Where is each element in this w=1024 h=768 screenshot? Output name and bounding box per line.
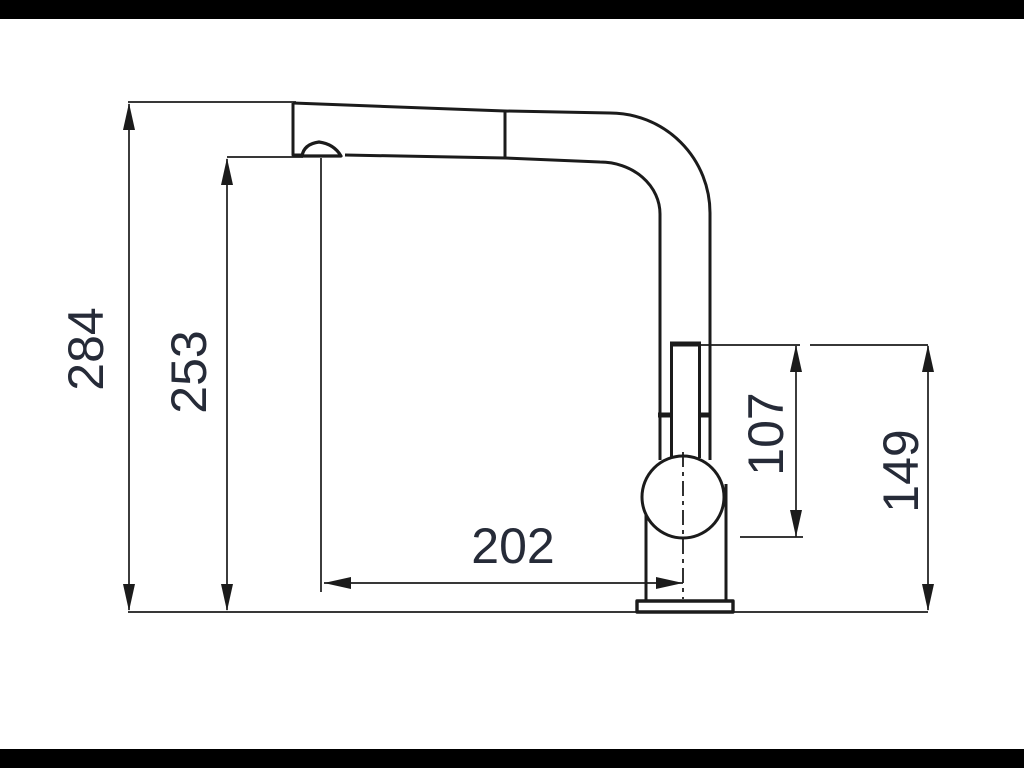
dim-spout-outlet-height: 253: [161, 157, 303, 611]
valve-cartridge-circle: [642, 456, 724, 538]
dim-spout-outlet-label: 253: [161, 330, 217, 413]
dim-body-handle-arrow-bottom: [790, 510, 802, 537]
dim-spout-reach-arrow-right: [656, 577, 683, 589]
dim-spout-outlet-arrow-bottom: [221, 584, 233, 611]
dim-overall-height-arrow-bottom: [123, 584, 135, 611]
lever-handle: [672, 343, 700, 458]
dim-spout-reach-arrow-left: [324, 577, 351, 589]
dim-handle-top-height: 149: [873, 345, 934, 611]
dim-spout-reach-label: 202: [471, 518, 554, 574]
base-plate: [637, 601, 733, 612]
dim-body-handle-label: 107: [738, 392, 794, 475]
spray-head-front-edge: [293, 103, 303, 155]
dim-handle-height-label: 149: [873, 429, 929, 512]
letterbox-bottom: [0, 749, 1024, 768]
dimension-drawing-canvas: 284 253 202 107: [0, 0, 1024, 768]
dim-overall-height-arrow-top: [123, 103, 135, 130]
dim-body-to-handle-top: 107: [738, 345, 803, 537]
spout-inner-edge: [345, 155, 660, 460]
dim-overall-height-label: 284: [58, 307, 114, 390]
dim-body-handle-arrow-top: [790, 345, 802, 372]
dim-spout-reach: 202: [321, 158, 683, 592]
letterbox-top: [0, 0, 1024, 19]
dim-spout-outlet-arrow-top: [221, 158, 233, 185]
dim-handle-height-arrow-bottom: [922, 584, 934, 611]
aerator-outline: [302, 142, 341, 156]
dim-handle-height-arrow-top: [922, 345, 934, 372]
screenshot-root: 284 253 202 107: [0, 0, 1024, 768]
